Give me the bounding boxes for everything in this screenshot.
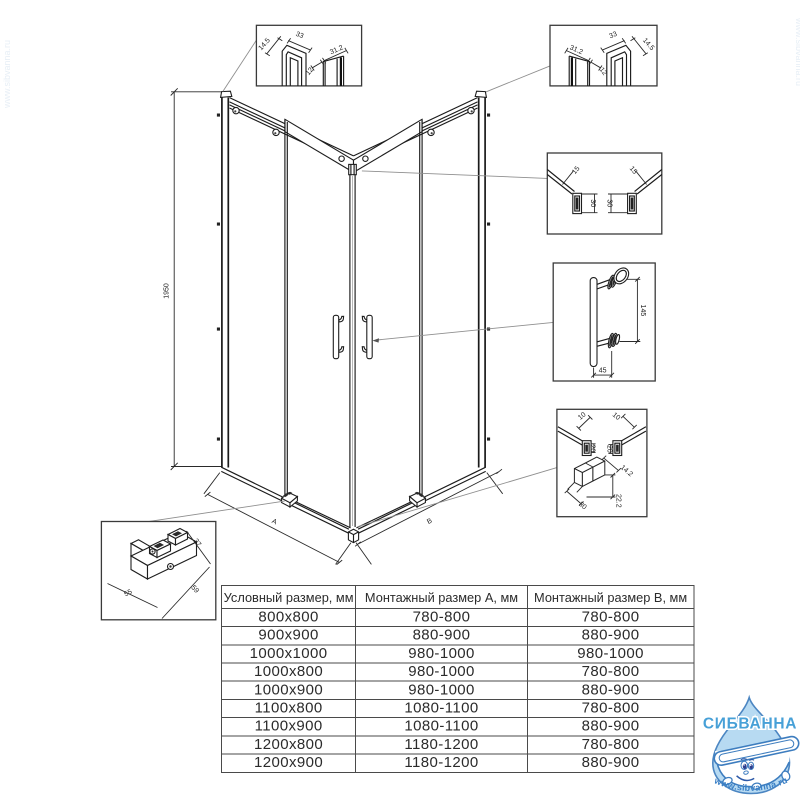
- svg-text:20: 20: [605, 445, 612, 453]
- svg-text:1080-1100: 1080-1100: [404, 700, 478, 717]
- svg-text:980-1000: 980-1000: [408, 681, 475, 698]
- svg-text:1200х900: 1200х900: [254, 754, 323, 771]
- svg-text:Условный размер, мм: Условный размер, мм: [224, 590, 354, 605]
- svg-text:1180-1200: 1180-1200: [404, 736, 478, 753]
- svg-text:1080-1100: 1080-1100: [404, 718, 478, 735]
- svg-text:880-900: 880-900: [413, 627, 471, 644]
- svg-text:780-800: 780-800: [413, 609, 471, 626]
- svg-text:Монтажный размер А, мм: Монтажный размер А, мм: [365, 590, 518, 605]
- svg-text:1180-1200: 1180-1200: [404, 754, 478, 771]
- svg-text:880-900: 880-900: [582, 718, 640, 735]
- svg-text:780-800: 780-800: [582, 736, 640, 753]
- svg-text:1100х900: 1100х900: [255, 718, 323, 735]
- svg-text:45: 45: [599, 368, 607, 375]
- svg-text:780-800: 780-800: [582, 663, 640, 680]
- svg-text:880-900: 880-900: [582, 754, 640, 771]
- svg-text:1000х800: 1000х800: [254, 663, 323, 680]
- svg-text:880-900: 880-900: [582, 681, 640, 698]
- svg-text:980-1000: 980-1000: [577, 645, 644, 662]
- svg-text:22.2: 22.2: [615, 494, 622, 508]
- svg-text:30: 30: [606, 199, 613, 207]
- svg-text:1950: 1950: [163, 283, 170, 299]
- svg-text:980-1000: 980-1000: [408, 645, 475, 662]
- svg-text:www.sibvanna.ru: www.sibvanna.ru: [2, 40, 12, 109]
- svg-text:800х800: 800х800: [258, 609, 318, 626]
- svg-text:30: 30: [589, 199, 596, 207]
- svg-text:www.sibvanna.ru: www.sibvanna.ru: [794, 17, 800, 86]
- svg-text:780-800: 780-800: [582, 609, 640, 626]
- svg-text:1000х1000: 1000х1000: [250, 645, 328, 662]
- svg-text:СИБВАННА: СИБВАННА: [703, 716, 797, 733]
- svg-text:20: 20: [589, 445, 596, 453]
- svg-text:880-900: 880-900: [582, 627, 640, 644]
- svg-text:1200х800: 1200х800: [254, 736, 323, 753]
- svg-text:900х900: 900х900: [258, 627, 318, 644]
- svg-text:145: 145: [639, 305, 646, 317]
- svg-text:980-1000: 980-1000: [408, 663, 475, 680]
- svg-text:1000х900: 1000х900: [254, 681, 323, 698]
- svg-text:780-800: 780-800: [582, 700, 640, 717]
- svg-text:1100х800: 1100х800: [255, 700, 323, 717]
- svg-text:Монтажный размер В, мм: Монтажный размер В, мм: [534, 590, 687, 605]
